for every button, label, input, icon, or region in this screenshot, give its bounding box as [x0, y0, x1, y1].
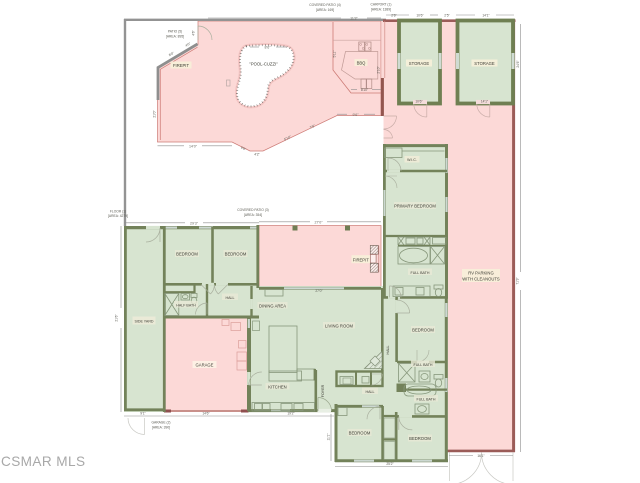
svg-text:STORAGE: STORAGE	[474, 61, 495, 66]
svg-text:STORAGE: STORAGE	[409, 61, 430, 66]
svg-text:BEDROOM: BEDROOM	[412, 328, 434, 333]
svg-text:9'6": 9'6"	[353, 113, 360, 117]
svg-text:PATIO (5): PATIO (5)	[168, 30, 182, 34]
svg-text:25'2": 25'2"	[386, 462, 394, 466]
svg-text:COVERED PATIO (4): COVERED PATIO (4)	[309, 3, 341, 7]
svg-text:[AREA: 354]: [AREA: 354]	[244, 213, 262, 217]
svg-text:[AREA: 4279]: [AREA: 4279]	[108, 214, 128, 218]
svg-text:FIREPIT: FIREPIT	[173, 63, 189, 68]
svg-text:19'2": 19'2"	[287, 412, 295, 416]
svg-text:CSMAR MLS: CSMAR MLS	[1, 454, 85, 469]
svg-text:[AREA: 390]: [AREA: 390]	[152, 426, 170, 430]
svg-text:14'1": 14'1"	[482, 13, 490, 17]
svg-text:4'2": 4'2"	[254, 153, 260, 157]
svg-text:14'6": 14'6"	[202, 412, 210, 416]
svg-text:FLOOR (1): FLOOR (1)	[110, 210, 126, 214]
svg-text:BEDROOM: BEDROOM	[225, 252, 247, 257]
svg-text:8'10": 8'10"	[361, 88, 369, 92]
svg-text:HALL: HALL	[386, 346, 390, 355]
svg-text:5'11": 5'11"	[333, 50, 337, 58]
svg-text:14'1": 14'1"	[481, 100, 489, 104]
svg-text:[AREA: 895]: [AREA: 895]	[166, 35, 184, 39]
svg-text:9'1": 9'1"	[140, 412, 146, 416]
svg-text:4'6": 4'6"	[192, 29, 196, 35]
svg-text:FOYER: FOYER	[321, 384, 325, 397]
svg-text:BBQ: BBQ	[357, 61, 367, 66]
svg-text:GARAGE (2): GARAGE (2)	[151, 421, 170, 425]
svg-text:10'6": 10'6"	[416, 13, 424, 17]
svg-text:11'3": 11'3"	[350, 17, 358, 21]
svg-text:COVERED PATIO (3): COVERED PATIO (3)	[237, 208, 269, 212]
svg-text:[AREA: 1389]: [AREA: 1389]	[371, 8, 391, 12]
svg-text:KITCHEN: KITCHEN	[268, 385, 286, 390]
svg-text:BEDROOM: BEDROOM	[349, 431, 371, 436]
svg-text:RV PARKING: RV PARKING	[468, 271, 493, 276]
svg-text:[AREA: 169]: [AREA: 169]	[316, 8, 334, 12]
svg-text:21'0": 21'0"	[153, 110, 157, 118]
svg-text:HALL: HALL	[366, 390, 375, 394]
svg-text:DINING AREA: DINING AREA	[259, 304, 286, 309]
svg-text:LIVING ROOM: LIVING ROOM	[325, 324, 353, 329]
svg-text:2'5": 2'5"	[444, 13, 450, 17]
svg-text:11'1": 11'1"	[327, 433, 331, 441]
svg-text:HALF BATH: HALF BATH	[176, 303, 196, 307]
svg-text:BEDROOM: BEDROOM	[409, 436, 431, 441]
svg-text:FIREPIT: FIREPIT	[353, 257, 369, 262]
svg-text:WITH CLEANOUTS: WITH CLEANOUTS	[462, 277, 500, 282]
svg-text:FULL BATH: FULL BATH	[417, 397, 436, 401]
svg-text:PRIMARY BEDROOM: PRIMARY BEDROOM	[394, 204, 436, 209]
svg-text:29'3": 29'3"	[190, 221, 199, 225]
svg-text:27'0": 27'0"	[315, 289, 323, 293]
svg-text:W.I.C.: W.I.C.	[407, 158, 417, 162]
svg-text:27'0": 27'0"	[315, 220, 324, 224]
svg-text:GARAGE: GARAGE	[196, 363, 214, 368]
svg-text:SIDE YARD: SIDE YARD	[134, 319, 153, 323]
svg-text:FULL BATH: FULL BATH	[414, 363, 433, 367]
svg-text:"POOL-CUZZI": "POOL-CUZZI"	[249, 62, 278, 67]
svg-text:8'6": 8'6"	[265, 46, 272, 50]
svg-text:HALL: HALL	[226, 296, 235, 300]
svg-text:71'9": 71'9"	[516, 277, 520, 285]
svg-text:2'10": 2'10"	[377, 66, 381, 74]
svg-text:10'6": 10'6"	[415, 100, 423, 104]
svg-text:21'6": 21'6"	[115, 314, 119, 322]
svg-text:CARPORT (1): CARPORT (1)	[371, 3, 392, 7]
svg-text:BEDROOM: BEDROOM	[176, 252, 198, 257]
svg-text:2'6": 2'6"	[391, 13, 397, 17]
svg-text:FULL BATH: FULL BATH	[411, 271, 430, 275]
svg-text:24'6": 24'6"	[516, 60, 520, 68]
svg-text:16'1": 16'1"	[477, 454, 485, 458]
svg-text:14'0": 14'0"	[189, 144, 198, 148]
